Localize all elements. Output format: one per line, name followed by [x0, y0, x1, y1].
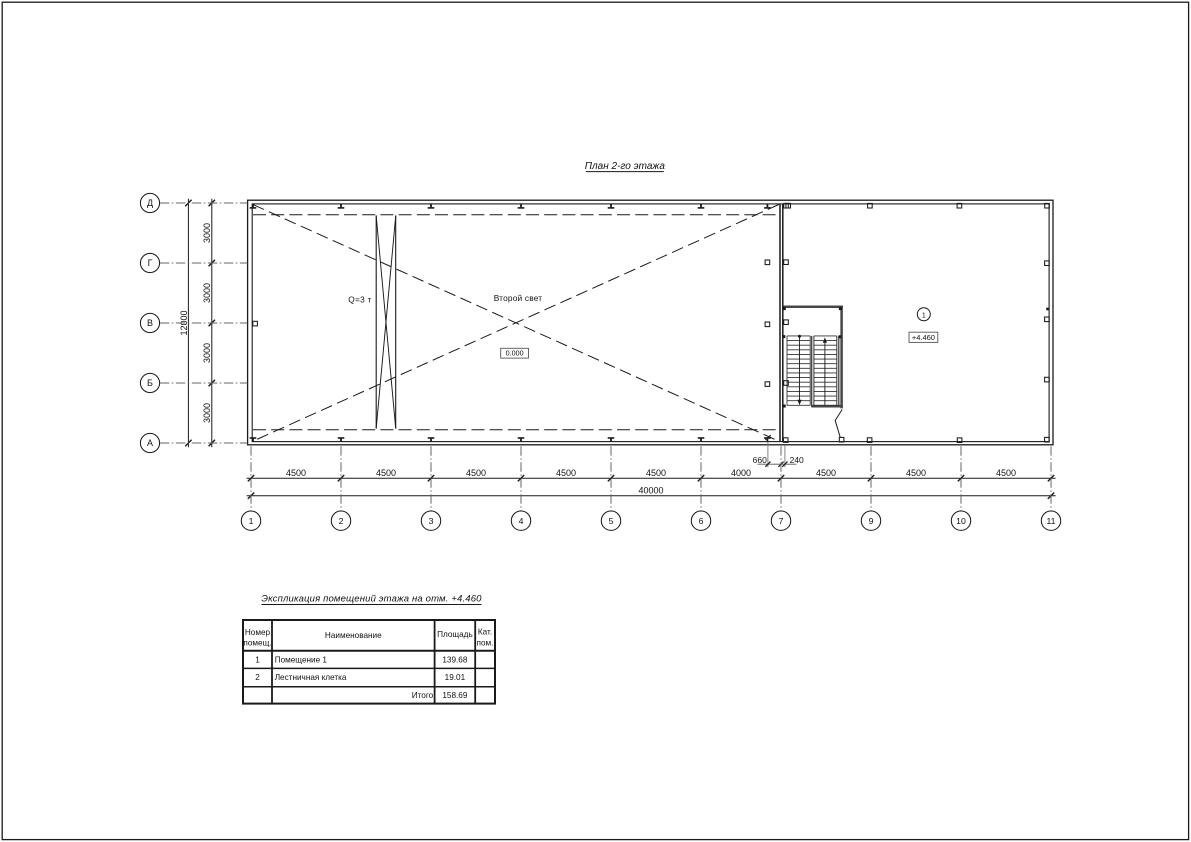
svg-text:3000: 3000 — [202, 403, 212, 423]
svg-text:4500: 4500 — [906, 468, 926, 478]
svg-text:Д: Д — [147, 198, 153, 208]
svg-text:Помещение 1: Помещение 1 — [275, 655, 328, 664]
svg-text:Наименование: Наименование — [325, 631, 382, 640]
svg-text:4500: 4500 — [646, 468, 666, 478]
svg-text:Г: Г — [148, 258, 153, 268]
svg-text:План 2-го этажа: План 2-го этажа — [585, 161, 666, 172]
svg-text:4: 4 — [519, 516, 524, 526]
svg-text:4500: 4500 — [816, 468, 836, 478]
svg-text:7: 7 — [779, 516, 784, 526]
svg-text:9: 9 — [869, 516, 874, 526]
svg-text:3000: 3000 — [202, 223, 212, 243]
svg-text:пом.: пом. — [477, 639, 494, 648]
svg-text:4000: 4000 — [731, 468, 751, 478]
svg-text:4500: 4500 — [466, 468, 486, 478]
svg-text:2: 2 — [339, 516, 344, 526]
svg-text:660: 660 — [753, 455, 767, 465]
svg-text:19.01: 19.01 — [445, 673, 466, 682]
svg-text:139.68: 139.68 — [442, 655, 467, 664]
svg-text:2: 2 — [255, 673, 260, 682]
svg-text:А: А — [147, 438, 153, 448]
svg-text:1: 1 — [922, 313, 926, 320]
svg-text:+4.460: +4.460 — [912, 333, 935, 342]
svg-text:Б: Б — [147, 378, 153, 388]
svg-text:6: 6 — [699, 516, 704, 526]
svg-text:10: 10 — [956, 516, 966, 526]
svg-text:3000: 3000 — [202, 343, 212, 363]
svg-text:В: В — [147, 318, 153, 328]
svg-text:Итого: Итого — [412, 691, 434, 700]
svg-text:4500: 4500 — [996, 468, 1016, 478]
svg-text:240: 240 — [790, 455, 804, 465]
svg-text:Площадь: Площадь — [437, 630, 473, 639]
svg-text:11: 11 — [1046, 516, 1055, 526]
svg-text:Номер: Номер — [245, 628, 271, 637]
svg-text:Кат.: Кат. — [478, 627, 492, 636]
svg-text:помещ.: помещ. — [243, 638, 271, 647]
svg-text:Экспликация помещений этажа на: Экспликация помещений этажа на отм. +4.4… — [261, 594, 482, 605]
svg-text:4500: 4500 — [376, 468, 396, 478]
svg-text:1: 1 — [255, 655, 260, 664]
svg-text:Лестничная клетка: Лестничная клетка — [275, 673, 347, 682]
svg-text:3: 3 — [429, 516, 434, 526]
svg-text:0.000: 0.000 — [506, 349, 524, 358]
svg-text:40000: 40000 — [638, 485, 663, 495]
svg-text:158.69: 158.69 — [442, 691, 467, 700]
svg-text:4500: 4500 — [286, 468, 306, 478]
svg-text:Q=3 т: Q=3 т — [348, 294, 372, 304]
svg-text:1: 1 — [249, 516, 254, 526]
svg-text:4500: 4500 — [556, 468, 576, 478]
svg-text:Второй свет: Второй свет — [494, 293, 543, 303]
svg-text:5: 5 — [609, 516, 614, 526]
svg-text:3000: 3000 — [202, 283, 212, 303]
